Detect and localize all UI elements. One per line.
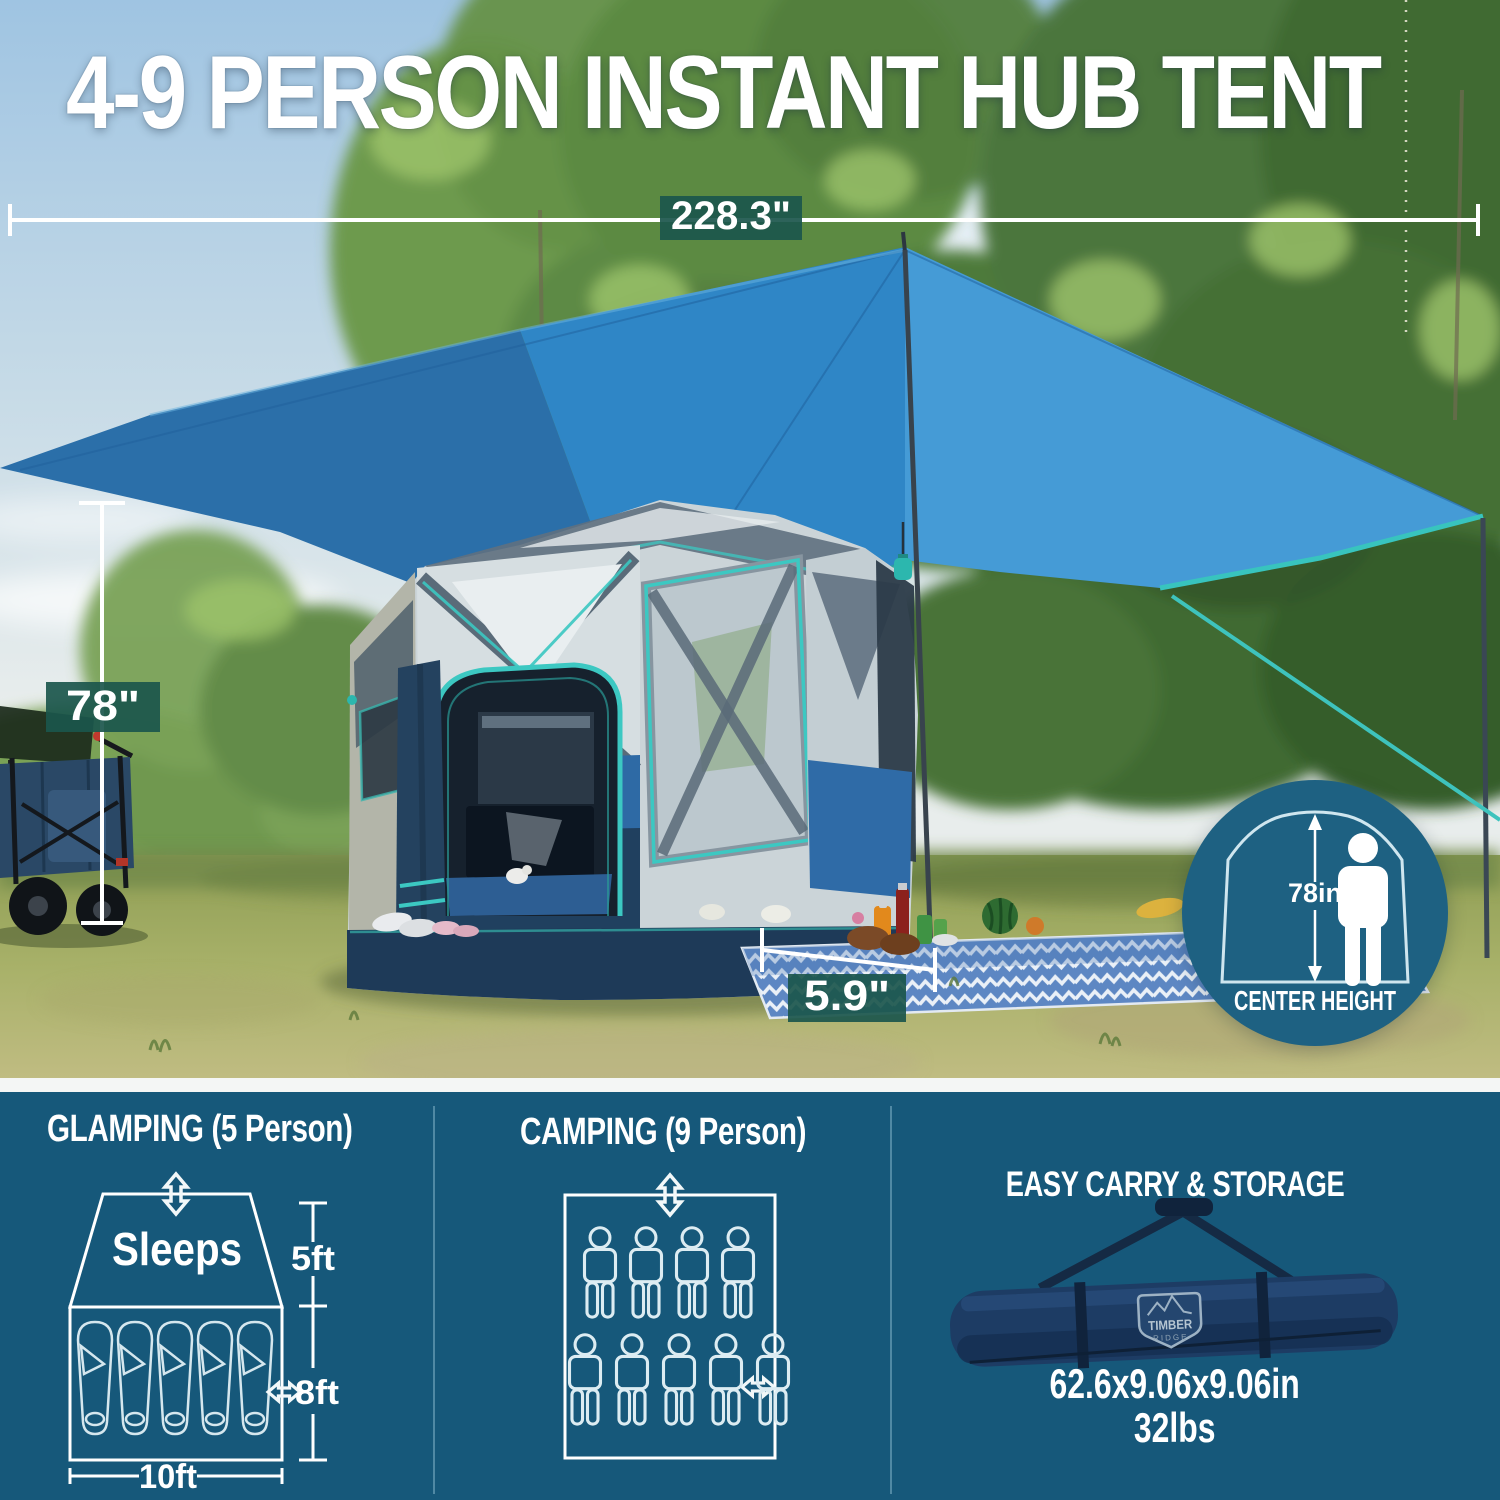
product-infographic: 4-9 PERSON INSTANT HUB TENT 228.3" 78" 5… — [0, 0, 1500, 1500]
person-icons-top-row — [585, 1228, 754, 1317]
carry-bag: TIMBER RIDGE — [948, 1266, 1400, 1374]
camping-capacity-diagram — [433, 1150, 890, 1500]
glamping-floorplan: Sleeps 5ft 8ft 10ft — [0, 1150, 433, 1500]
height-label: 78" — [66, 682, 140, 730]
floorplan-room — [70, 1307, 282, 1460]
length-10ft-label: 10ft — [139, 1458, 197, 1496]
bag-dimensions: 62.6x9.06x9.06in — [890, 1360, 1460, 1408]
width-8ft-label: 8ft — [295, 1374, 339, 1412]
sleeps-label: Sleeps — [112, 1223, 242, 1275]
glamping-heading: GLAMPING (5 Person) — [47, 1108, 439, 1151]
logo-text-ridge: RIDGE — [1153, 1332, 1189, 1343]
height-5ft-label: 5ft — [291, 1240, 335, 1278]
bag-weight: 32lbs — [890, 1404, 1460, 1452]
carry-bag-illustration: TIMBER RIDGE — [890, 1190, 1500, 1375]
camping-heading: CAMPING (9 Person) — [520, 1111, 887, 1154]
logo-text-timber: TIMBER — [1148, 1316, 1193, 1333]
person-silhouette-icon — [1338, 833, 1388, 986]
center-height-badge: 78in CENTER HEIGHT — [1182, 780, 1448, 1046]
strap-handle — [1155, 1198, 1213, 1216]
stake-label: 5.9" — [804, 972, 890, 1020]
photo-border — [0, 1078, 1500, 1092]
width-label: 228.3" — [671, 194, 791, 238]
sleeping-bag-icons — [78, 1322, 272, 1434]
badge-caption: CENTER HEIGHT — [1234, 985, 1396, 1016]
badge-height-value: 78in — [1288, 878, 1342, 908]
person-icons-bottom-row — [570, 1335, 789, 1424]
